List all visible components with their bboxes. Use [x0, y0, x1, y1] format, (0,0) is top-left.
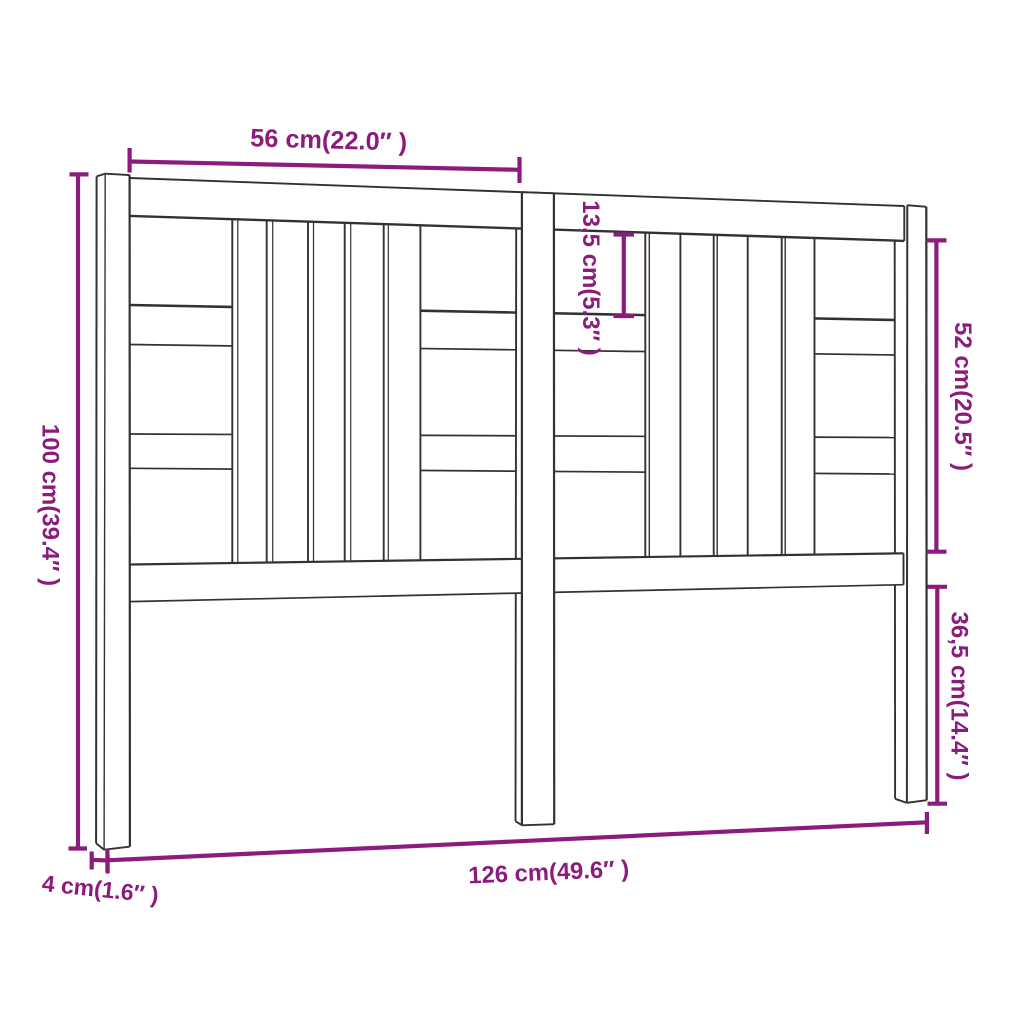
svg-text:56 cm(22.0″ ): 56 cm(22.0″ ): [250, 124, 408, 156]
svg-text:52 cm(20.5″ ): 52 cm(20.5″ ): [949, 322, 976, 471]
svg-text:13,5 cm(5.3″ ): 13,5 cm(5.3″ ): [577, 200, 604, 356]
svg-text:100 cm(39.4″ ): 100 cm(39.4″ ): [37, 424, 64, 586]
svg-text:36,5 cm(14.4″ ): 36,5 cm(14.4″ ): [946, 612, 973, 781]
